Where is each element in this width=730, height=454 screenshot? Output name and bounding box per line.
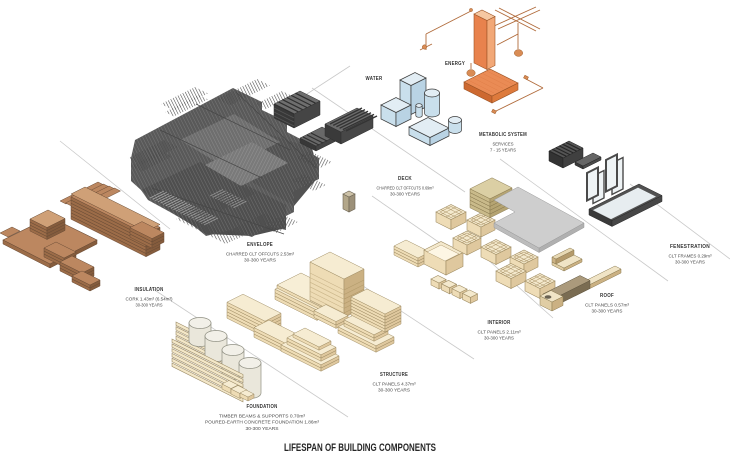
svg-text:FOUNDATION: FOUNDATION [247,404,278,410]
svg-text:30-300 YEARS: 30-300 YEARS [136,303,163,308]
svg-text:METABOLIC SYSTEM: METABOLIC SYSTEM [479,132,527,138]
svg-text:TIMBER BEAMS & SUPPORTS 0.70m: TIMBER BEAMS & SUPPORTS 0.70m³ [219,414,305,419]
svg-text:INSULATION: INSULATION [135,287,164,293]
svg-text:STRUCTURE: STRUCTURE [380,372,408,378]
svg-text:7 - 15 YEARS: 7 - 15 YEARS [490,148,516,153]
svg-text:CLT PANELS 4.37m³: CLT PANELS 4.37m³ [373,382,416,387]
svg-text:WATER: WATER [366,76,383,82]
svg-text:30-300 YEARS: 30-300 YEARS [244,258,276,263]
svg-text:CLT FRAMES 0.29m³: CLT FRAMES 0.29m³ [669,254,712,259]
svg-text:30-300 YEARS: 30-300 YEARS [592,309,623,314]
svg-text:30-300 YEARS: 30-300 YEARS [378,388,410,393]
svg-text:30-300 YEARS: 30-300 YEARS [390,192,420,197]
svg-text:DECK: DECK [398,176,412,182]
svg-text:30-300 YEARS: 30-300 YEARS [484,336,514,341]
svg-text:CORK 1.43m³ (6.54m³): CORK 1.43m³ (6.54m³) [126,297,173,302]
svg-text:ROOF: ROOF [600,293,614,299]
svg-text:POURED-EARTH CONCRETE FOUNDATI: POURED-EARTH CONCRETE FOUNDATION 1.86m³ [205,420,319,425]
svg-text:CLT PANELS 0.57m³: CLT PANELS 0.57m³ [585,303,629,308]
svg-text:FENESTRATION: FENESTRATION [670,244,710,250]
svg-text:ENERGY: ENERGY [445,61,465,67]
svg-text:SERVICES: SERVICES [493,142,514,147]
svg-text:30-300 YEARS: 30-300 YEARS [675,260,705,265]
svg-text:30-300 YEARS: 30-300 YEARS [246,426,279,431]
svg-text:LIFESPAN OF BUILDING COMPONENT: LIFESPAN OF BUILDING COMPONENTS [284,442,436,454]
svg-text:CLT PANELS 2.11m³: CLT PANELS 2.11m³ [478,330,521,335]
svg-text:CHARRED CLT OFFCUTS 2.53m³: CHARRED CLT OFFCUTS 2.53m³ [226,252,294,257]
svg-text:CHARRED CLT OFFCUTS 0.69m³: CHARRED CLT OFFCUTS 0.69m³ [377,186,434,191]
svg-text:INTERIOR: INTERIOR [488,320,511,326]
svg-text:ENVELOPE: ENVELOPE [247,242,273,248]
